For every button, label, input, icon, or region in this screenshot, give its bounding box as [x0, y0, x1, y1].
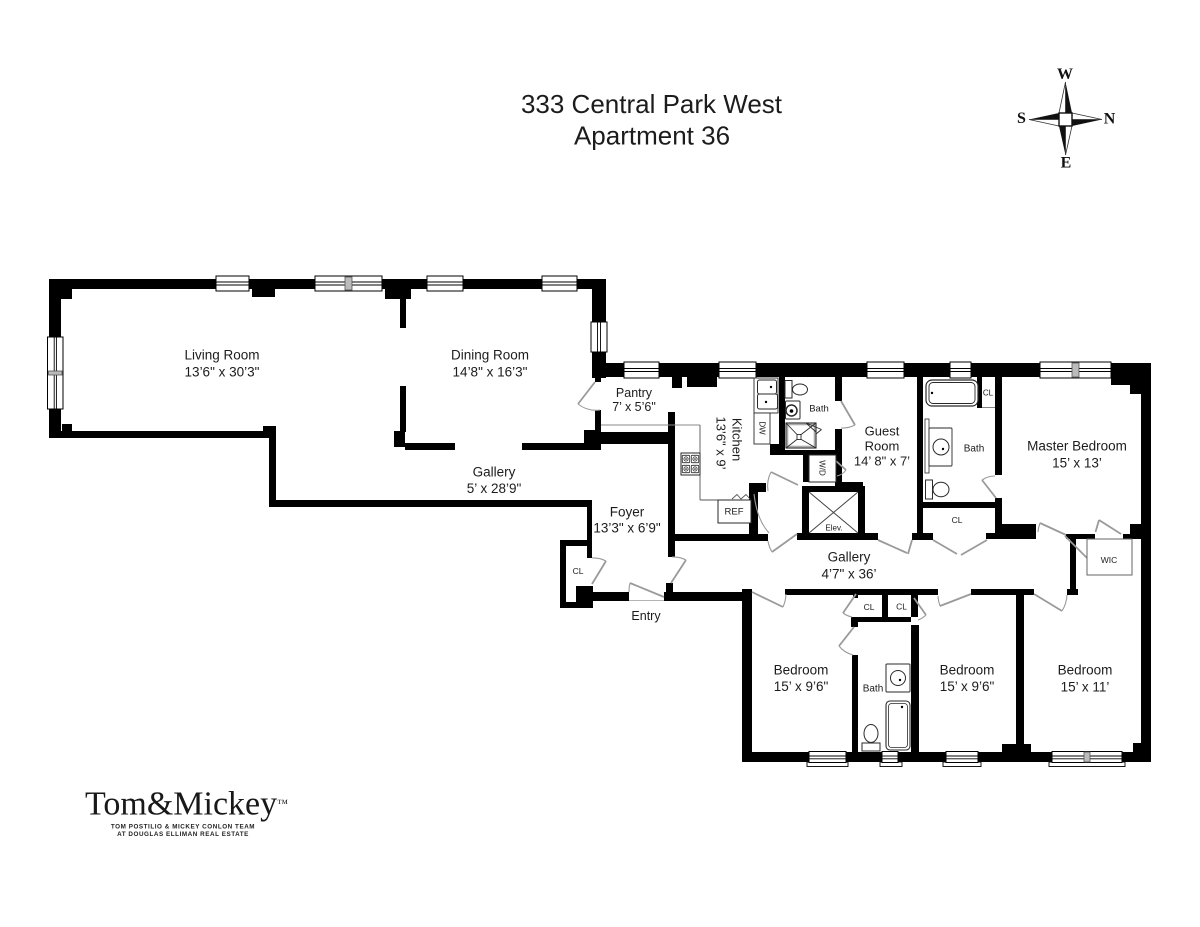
svg-text:Gallery: Gallery	[473, 465, 516, 480]
svg-text:Bath: Bath	[809, 404, 829, 415]
svg-text:13’6" x 30’3": 13’6" x 30’3"	[185, 365, 260, 380]
svg-text:15’ x 11’: 15’ x 11’	[1061, 680, 1110, 695]
svg-text:13’6" x 9’: 13’6" x 9’	[714, 416, 729, 469]
svg-text:333 Central Park West: 333 Central Park West	[521, 89, 783, 119]
svg-text:4’7" x 36’: 4’7" x 36’	[821, 567, 876, 582]
svg-text:Apartment 36: Apartment 36	[574, 121, 730, 151]
svg-text:Living Room: Living Room	[184, 348, 259, 363]
svg-text:14’8" x 16’3": 14’8" x 16’3"	[453, 365, 528, 380]
svg-text:CL: CL	[952, 515, 963, 525]
svg-text:Elev.: Elev.	[825, 524, 842, 533]
svg-text:CL: CL	[864, 602, 875, 612]
svg-text:Room: Room	[865, 439, 900, 454]
svg-text:15’ x 13’: 15’ x 13’	[1052, 456, 1102, 471]
svg-text:TOM POSTILIO & MICKEY CONLON T: TOM POSTILIO & MICKEY CONLON TEAM	[111, 824, 255, 831]
svg-text:Gallery: Gallery	[828, 550, 871, 565]
svg-text:Bedroom: Bedroom	[940, 663, 995, 678]
svg-text:15’ x 9’6": 15’ x 9’6"	[940, 679, 995, 694]
svg-text:REF: REF	[725, 507, 744, 518]
svg-text:Guest: Guest	[865, 424, 900, 439]
svg-text:Bath: Bath	[863, 684, 884, 695]
svg-text:Tom&Mickey™: Tom&Mickey™	[85, 786, 288, 823]
svg-text:S: S	[1017, 110, 1026, 127]
svg-text:15’ x 9’6": 15’ x 9’6"	[774, 679, 829, 694]
svg-text:WIC: WIC	[1101, 555, 1118, 565]
svg-text:DW: DW	[758, 421, 767, 435]
svg-text:E: E	[1061, 155, 1072, 172]
svg-text:N: N	[1104, 111, 1116, 128]
svg-text:CL: CL	[983, 389, 994, 398]
svg-text:W: W	[1057, 66, 1073, 83]
svg-text:7’ x 5’6": 7’ x 5’6"	[612, 400, 656, 414]
svg-text:W/D: W/D	[818, 460, 827, 476]
svg-text:Bedroom: Bedroom	[1058, 663, 1113, 678]
svg-text:CL: CL	[896, 602, 907, 612]
svg-text:AT DOUGLAS ELLIMAN REAL ESTATE: AT DOUGLAS ELLIMAN REAL ESTATE	[117, 831, 249, 838]
svg-text:13’3" x 6’9": 13’3" x 6’9"	[593, 521, 661, 536]
svg-text:Foyer: Foyer	[610, 505, 645, 520]
svg-text:CL: CL	[573, 566, 584, 576]
svg-text:Bath: Bath	[964, 444, 985, 455]
svg-text:14’ 8" x 7’: 14’ 8" x 7’	[854, 454, 910, 469]
svg-text:Pantry: Pantry	[616, 386, 653, 400]
svg-text:Kitchen: Kitchen	[730, 418, 745, 461]
svg-text:Dining Room: Dining Room	[451, 348, 529, 363]
svg-text:Bedroom: Bedroom	[774, 663, 829, 678]
svg-text:Master Bedroom: Master Bedroom	[1027, 439, 1127, 454]
svg-text:5’ x 28’9": 5’ x 28’9"	[467, 481, 522, 496]
svg-text:Entry: Entry	[631, 609, 661, 623]
